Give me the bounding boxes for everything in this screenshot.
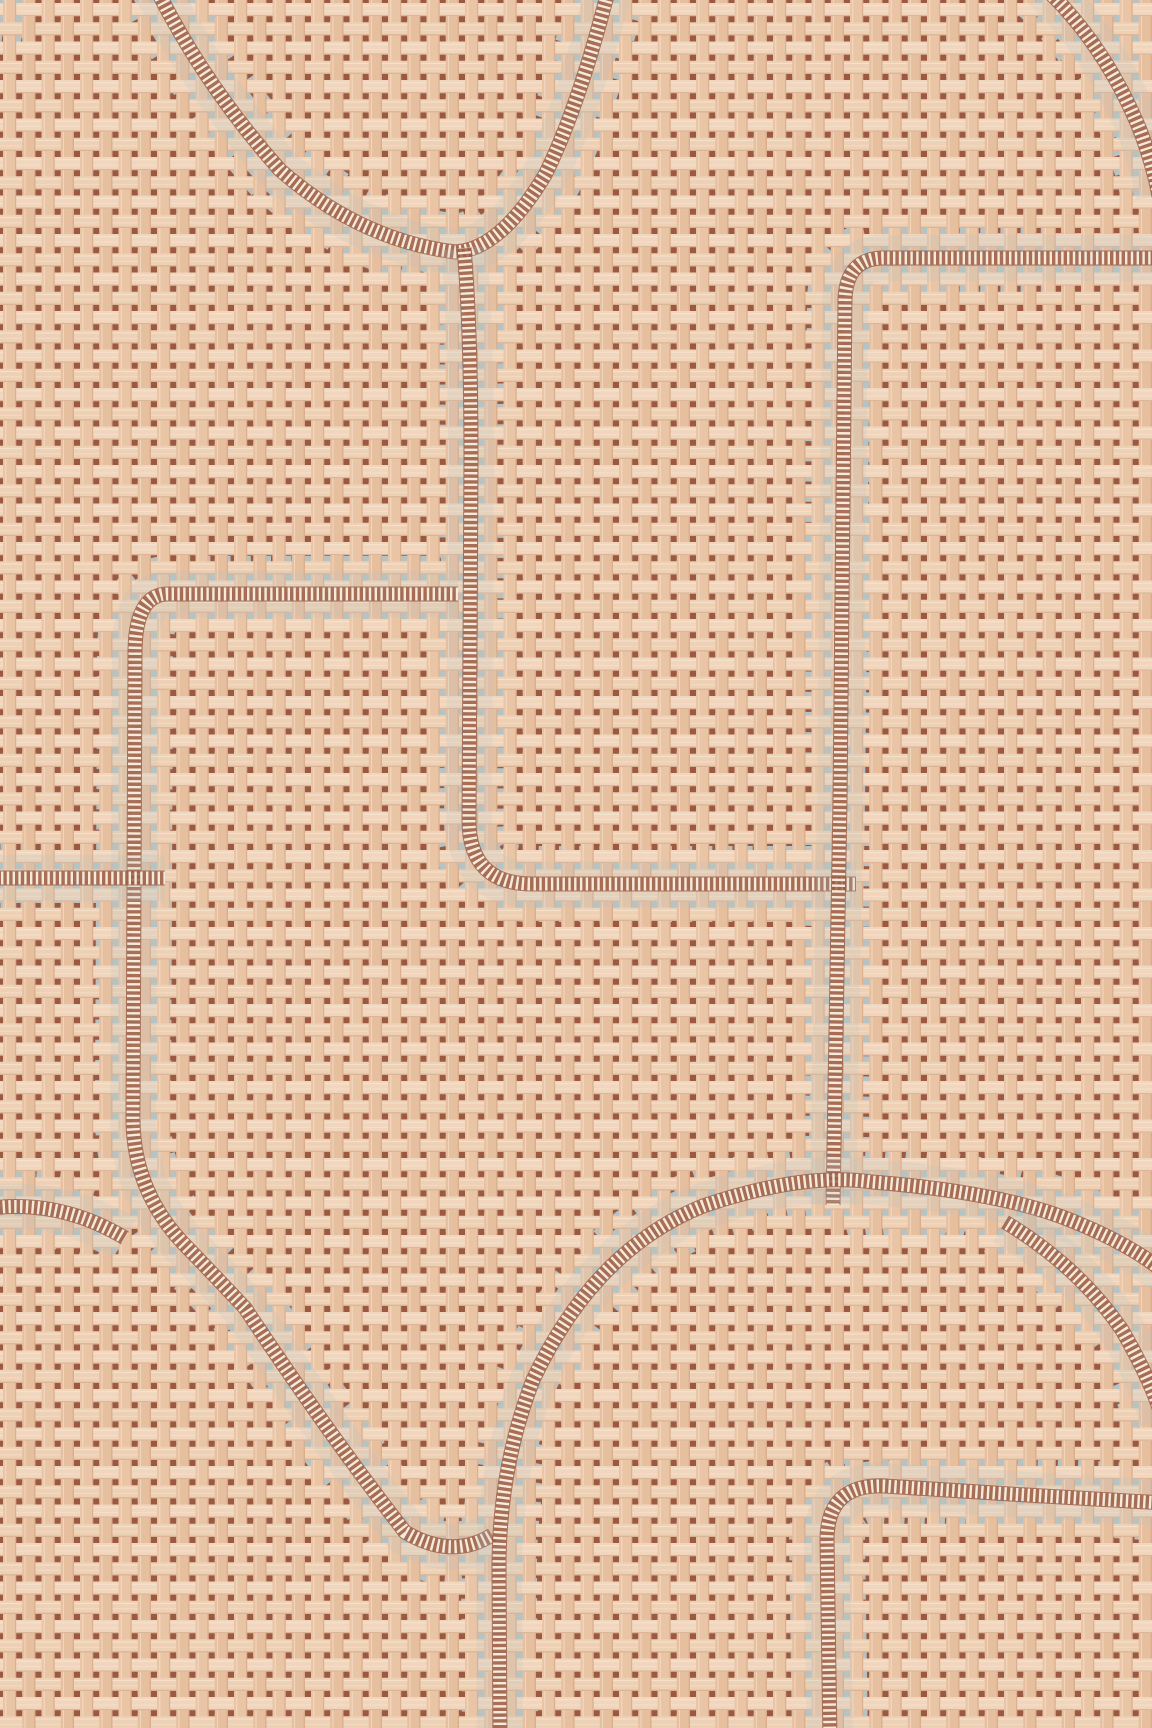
paperweave-pattern	[0, 0, 1152, 1728]
wallpaper-swatch	[0, 0, 1152, 1728]
